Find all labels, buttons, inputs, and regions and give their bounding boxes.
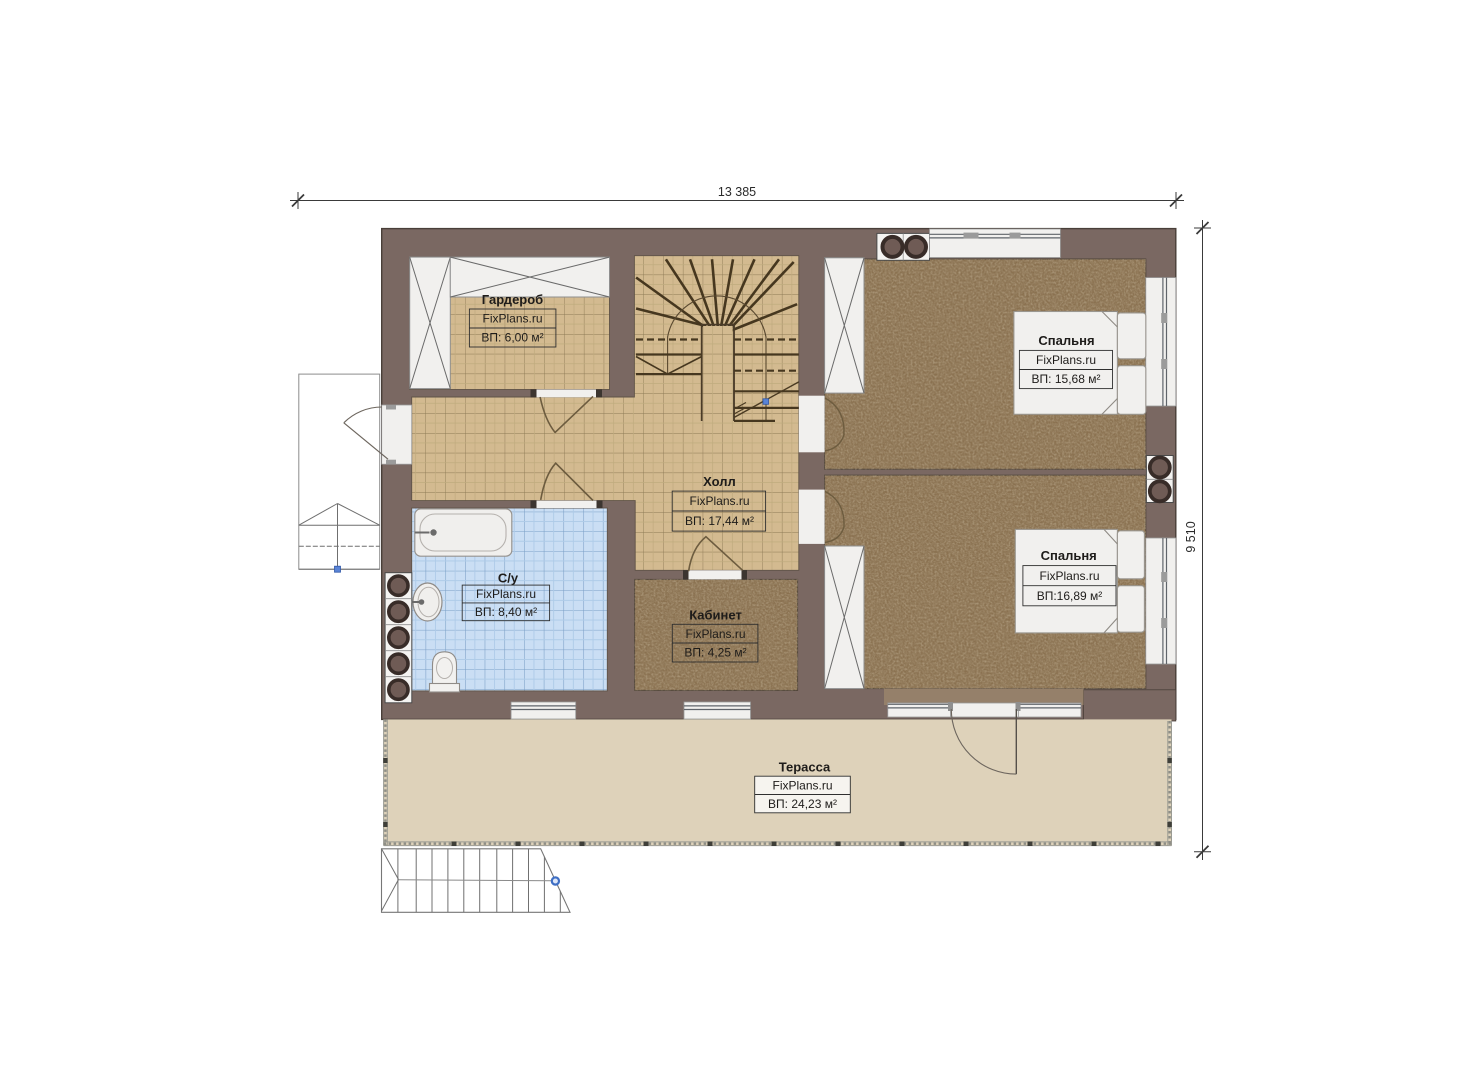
svg-text:FixPlans.ru: FixPlans.ru — [1039, 569, 1099, 583]
svg-text:13 385: 13 385 — [718, 185, 756, 199]
svg-text:FixPlans.ru: FixPlans.ru — [685, 627, 745, 641]
svg-text:Спальня: Спальня — [1041, 548, 1097, 563]
svg-text:Гардероб: Гардероб — [482, 292, 543, 307]
svg-text:Терасса: Терасса — [779, 760, 831, 775]
svg-text:FixPlans.ru: FixPlans.ru — [1036, 353, 1096, 367]
svg-text:Спальня: Спальня — [1038, 333, 1094, 348]
svg-text:ВП:16,89 м²: ВП:16,89 м² — [1037, 589, 1103, 603]
svg-text:ВП: 8,40 м²: ВП: 8,40 м² — [475, 605, 537, 619]
svg-text:ВП: 6,00 м²: ВП: 6,00 м² — [481, 331, 543, 345]
svg-text:FixPlans.ru: FixPlans.ru — [482, 312, 542, 326]
svg-text:ВП: 15,68 м²: ВП: 15,68 м² — [1032, 372, 1101, 386]
svg-text:ВП: 24,23 м²: ВП: 24,23 м² — [768, 797, 837, 811]
svg-text:9 510: 9 510 — [1184, 521, 1198, 552]
svg-text:С/у: С/у — [498, 571, 519, 586]
svg-text:ВП: 17,44 м²: ВП: 17,44 м² — [685, 514, 754, 528]
svg-text:FixPlans.ru: FixPlans.ru — [476, 587, 536, 601]
svg-text:FixPlans.ru: FixPlans.ru — [772, 779, 832, 793]
svg-text:Кабинет: Кабинет — [689, 608, 742, 623]
svg-text:Холл: Холл — [703, 474, 736, 489]
svg-text:FixPlans.ru: FixPlans.ru — [689, 494, 749, 508]
svg-text:ВП: 4,25 м²: ВП: 4,25 м² — [684, 646, 746, 660]
